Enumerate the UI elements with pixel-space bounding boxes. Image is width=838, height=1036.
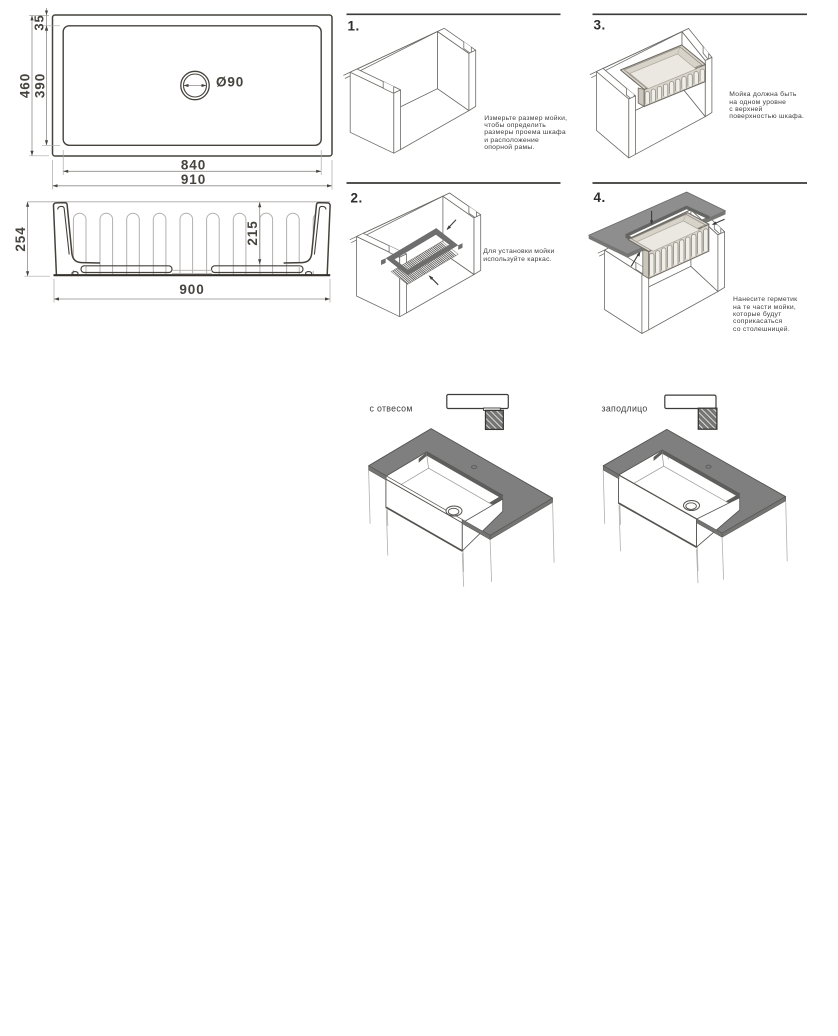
svg-text:215: 215 xyxy=(245,220,260,245)
svg-text:910: 910 xyxy=(181,172,206,187)
svg-text:900: 900 xyxy=(179,282,204,297)
svg-text:254: 254 xyxy=(13,226,28,251)
svg-text:заподлицо: заподлицо xyxy=(602,404,648,414)
svg-text:4.: 4. xyxy=(594,190,606,205)
svg-text:840: 840 xyxy=(181,157,206,172)
svg-text:Ø90: Ø90 xyxy=(216,75,244,90)
svg-text:2.: 2. xyxy=(351,191,363,206)
svg-text:460: 460 xyxy=(18,73,33,98)
svg-text:390: 390 xyxy=(33,73,48,98)
svg-text:1.: 1. xyxy=(348,19,360,34)
svg-text:с отвесом: с отвесом xyxy=(370,404,413,414)
svg-text:3.: 3. xyxy=(594,18,606,33)
svg-text:35: 35 xyxy=(32,14,47,30)
